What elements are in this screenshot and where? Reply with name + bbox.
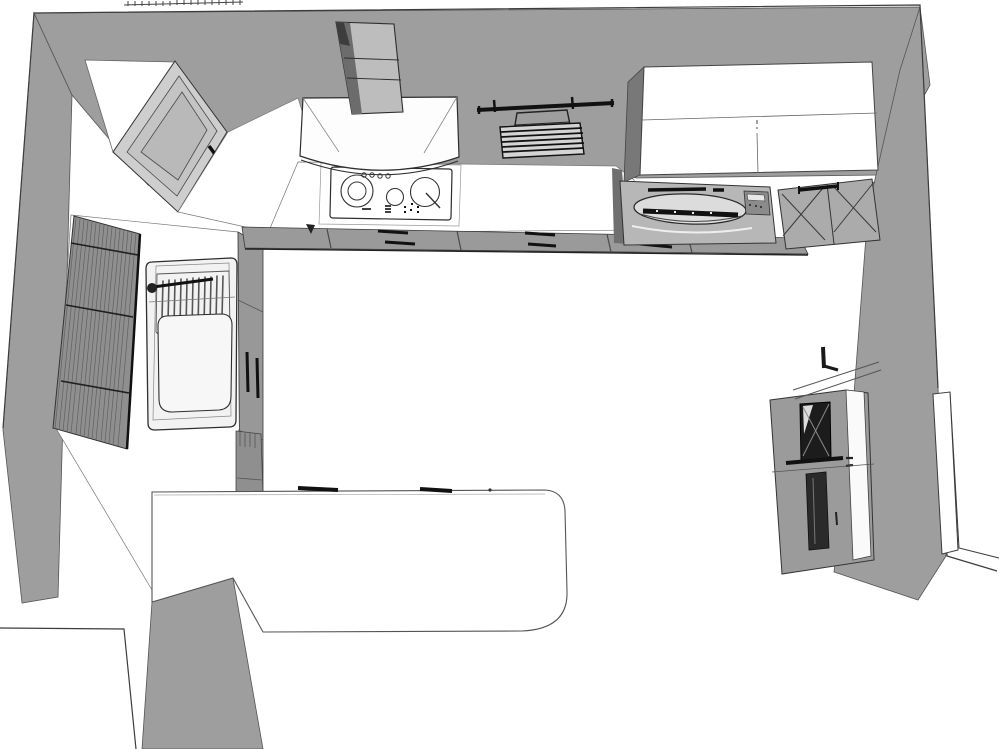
glass-cabinet-front — [778, 179, 880, 249]
oven-tower-mark — [836, 512, 837, 525]
oven-lower-door — [806, 472, 829, 550]
wall-cabinet-right-top — [640, 62, 878, 175]
sink-basin — [158, 314, 232, 412]
sink-faucet-base — [147, 283, 157, 293]
kitchen-render-stage — [0, 0, 1000, 749]
microwave-panel-screen — [747, 194, 765, 201]
wall-tap-mark — [823, 347, 824, 368]
island-mark — [488, 488, 491, 491]
kitchen-plan-svg — [0, 0, 1000, 749]
